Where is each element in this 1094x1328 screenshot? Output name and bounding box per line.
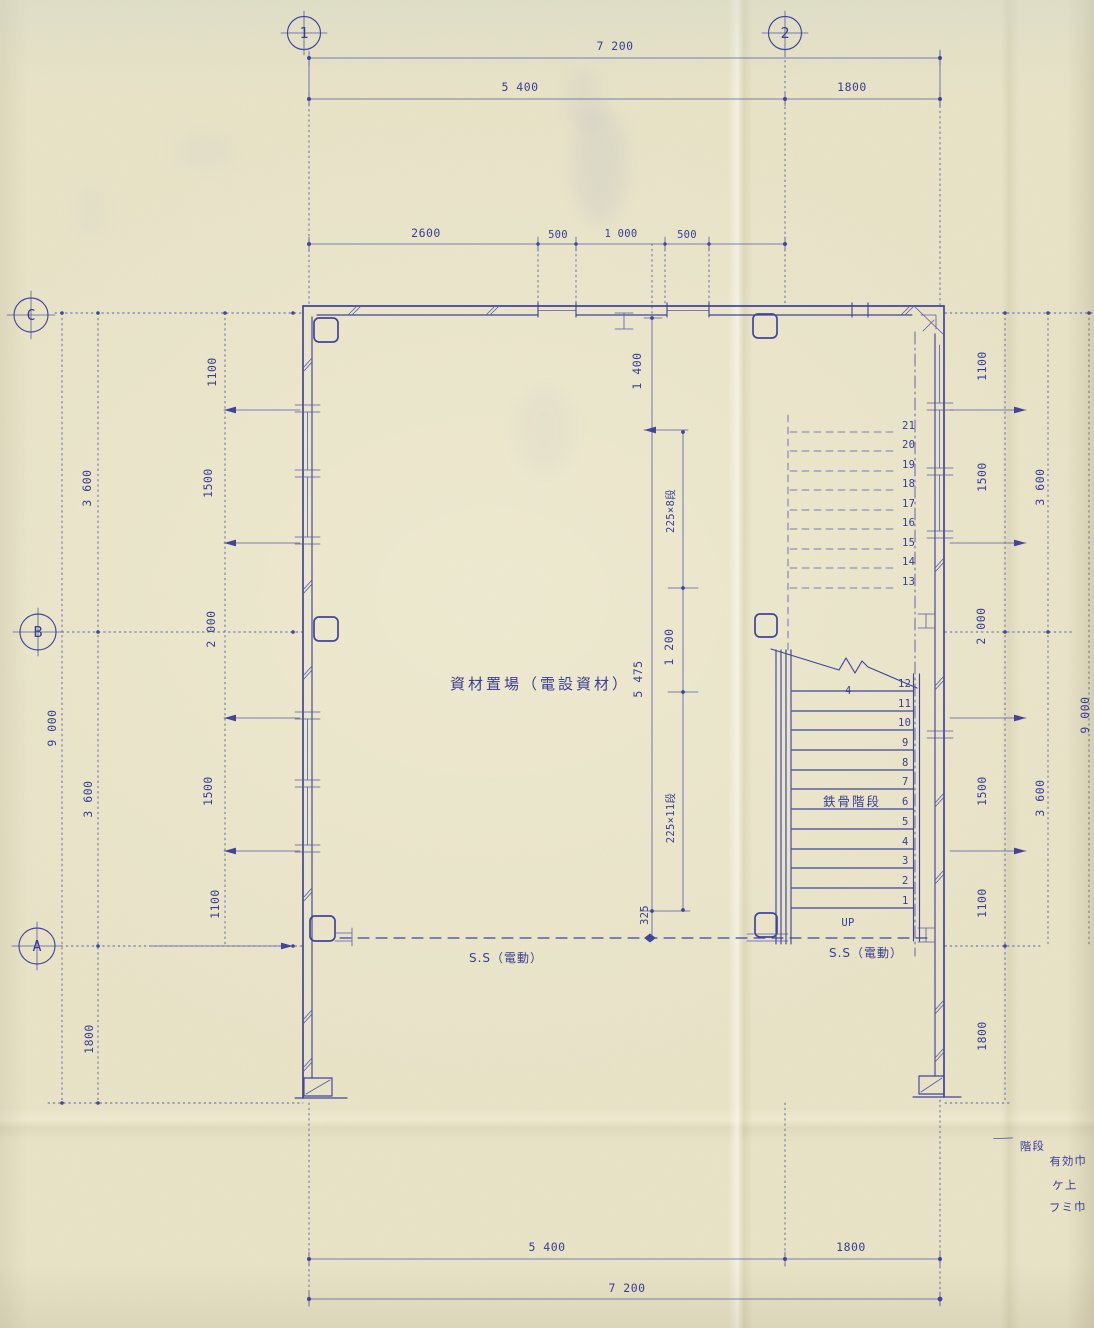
- dim-right-1100a: 1100: [975, 351, 989, 381]
- blueprint-page: 1 2 C B A: [0, 0, 1094, 1328]
- stair-mid-mark: 4: [845, 685, 852, 697]
- dim-right-3600a: 3 600: [1033, 468, 1047, 505]
- stair-step-18: 18: [902, 478, 915, 490]
- grid-label-c: C: [26, 306, 35, 324]
- paper-artifacts: [0, 0, 1094, 1328]
- stair-step-21: 21: [902, 420, 915, 432]
- dim-bottom-5400: 5 400: [528, 1240, 565, 1254]
- grid-label-a: A: [32, 937, 41, 955]
- dim-left-3600b: 3 600: [81, 780, 95, 817]
- dim-stair-1400: 1 400: [630, 352, 644, 389]
- dim-top-5400: 5 400: [501, 80, 538, 94]
- room-label: 資材置場（電設資材）: [450, 675, 630, 693]
- dim-left-9000: 9 000: [45, 709, 59, 746]
- stair-step-19: 19: [902, 459, 915, 471]
- stair-step-6: 6: [902, 796, 909, 808]
- dim-stair-5475: 5 475: [631, 660, 645, 697]
- dim-left-2000: 2 000: [204, 610, 218, 647]
- note-riser: ケ上: [1052, 1178, 1077, 1193]
- dim-inner-1000: 1 000: [604, 228, 637, 240]
- floor-plan-drawing: 1 2 C B A: [0, 0, 1094, 1328]
- note-effective-width: 有効巾: [1049, 1153, 1087, 1168]
- stair-step-11: 11: [898, 698, 911, 710]
- stair-step-17: 17: [902, 498, 915, 510]
- dim-stair-lower-flight: 225×11段: [664, 793, 677, 844]
- note-tread-width: フミ巾: [1049, 1199, 1087, 1214]
- grid-label-1: 1: [299, 24, 308, 42]
- stair-step-12: 12: [898, 678, 911, 690]
- dim-right-9000: 9 000: [1078, 696, 1092, 733]
- dim-left-3600a: 3 600: [80, 469, 94, 506]
- dim-stair-1200: 1 200: [662, 628, 676, 665]
- dim-left-1100a: 1100: [205, 357, 219, 387]
- stair-step-14: 14: [902, 556, 915, 568]
- dim-right-3600b: 3 600: [1033, 779, 1047, 816]
- dim-right-1500a: 1500: [975, 462, 989, 492]
- dim-top-overall: 7 200: [596, 39, 633, 53]
- grid-label-b: B: [33, 623, 42, 641]
- grid-label-2: 2: [780, 24, 789, 42]
- stair-step-3: 3: [902, 855, 909, 867]
- dim-top-1800: 1800: [837, 80, 867, 94]
- stair-step-7: 7: [902, 776, 909, 788]
- dim-right-1500b: 1500: [975, 776, 989, 806]
- dim-bottom-1800: 1800: [836, 1240, 866, 1254]
- dim-right-1100b: 1100: [975, 888, 989, 918]
- shutter-label-left: S.S（電動）: [469, 951, 543, 965]
- stair-step-9: 9: [902, 737, 909, 749]
- dim-stair-upper-flight: 225×8段: [664, 489, 677, 533]
- shutter-label-right: S.S（電動）: [829, 946, 903, 960]
- stair-step-20: 20: [902, 439, 915, 451]
- stair-name-label: 鉄骨階段: [823, 794, 881, 809]
- dim-inner-500b: 500: [677, 229, 697, 241]
- dim-left-1800: 1800: [82, 1024, 96, 1054]
- stair-up-label: UP: [841, 917, 854, 929]
- dim-right-2000: 2 000: [974, 607, 988, 644]
- stair-step-4: 4: [902, 836, 909, 848]
- dim-right-1800: 1800: [975, 1021, 989, 1051]
- note-stair: 階段: [1020, 1139, 1045, 1154]
- stair-step-1: 1: [902, 895, 909, 907]
- stair-step-10: 10: [898, 717, 911, 729]
- dim-bottom-overall: 7 200: [608, 1281, 645, 1295]
- dim-left-1500b: 1500: [201, 776, 215, 806]
- dim-inner-2600: 2600: [411, 226, 441, 240]
- stair-step-2: 2: [902, 875, 909, 887]
- stair-step-8: 8: [902, 757, 909, 769]
- dim-left-1100b: 1100: [208, 889, 222, 919]
- dim-stair-325: 325: [639, 905, 651, 925]
- dim-left-1500a: 1500: [201, 468, 215, 498]
- dim-inner-500a: 500: [548, 229, 568, 241]
- stair-step-15: 15: [902, 537, 915, 549]
- stair-step-5: 5: [902, 816, 909, 828]
- stair-step-13: 13: [902, 576, 915, 588]
- stair-step-16: 16: [902, 517, 915, 529]
